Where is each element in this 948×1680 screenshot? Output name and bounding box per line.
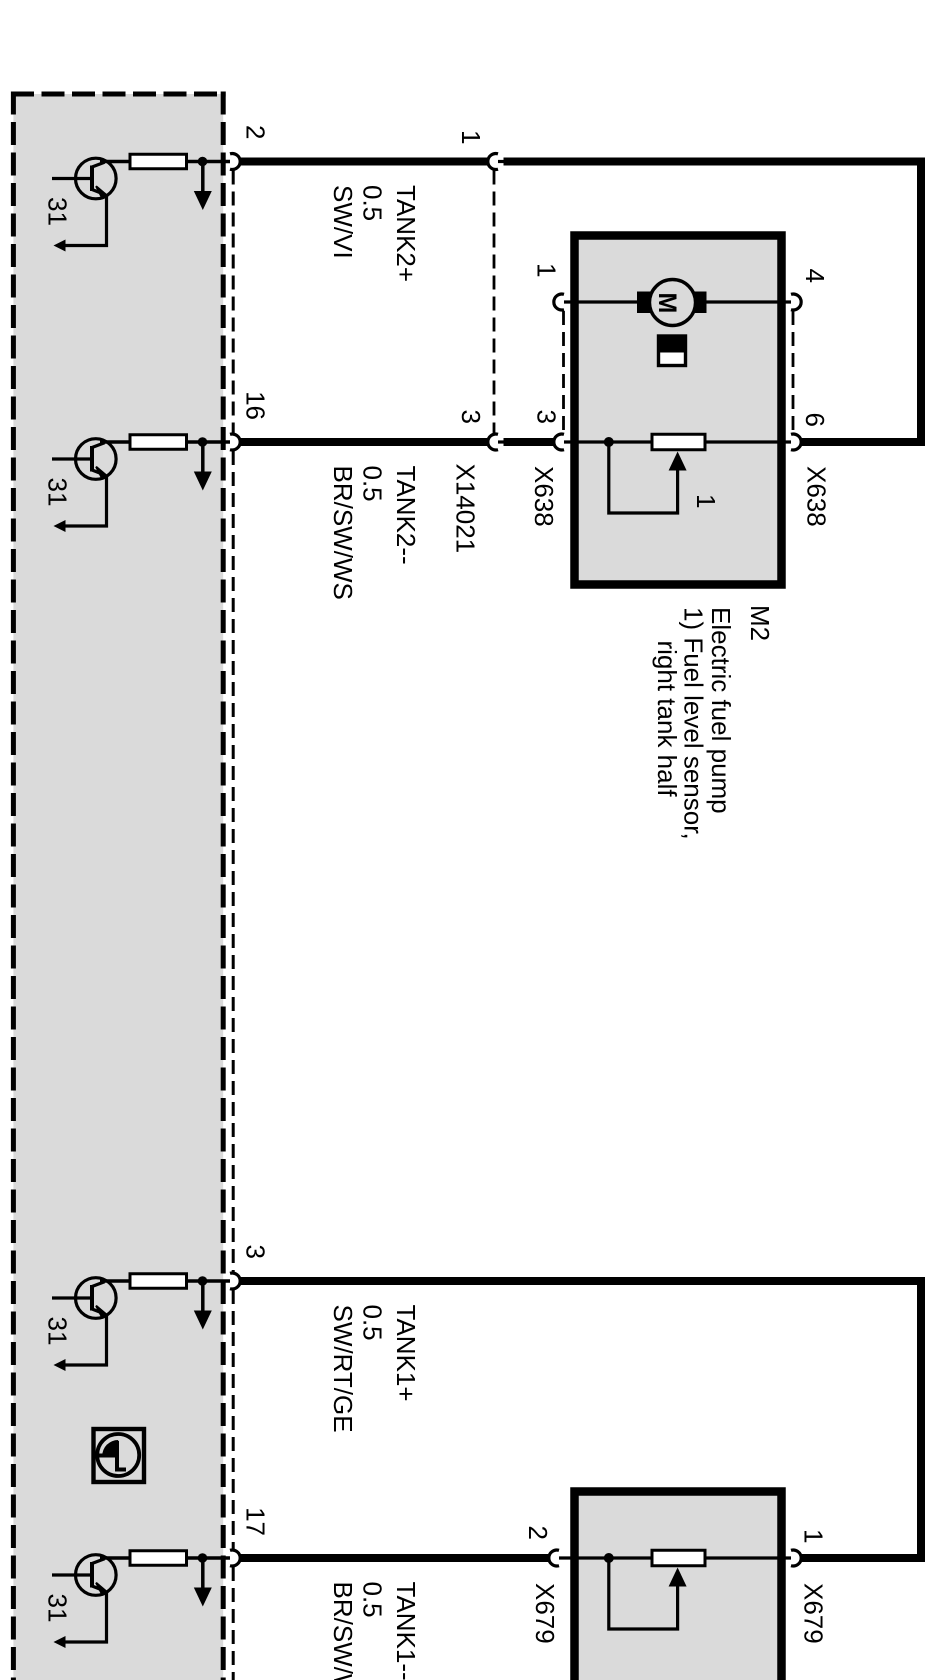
svg-text:X679: X679 bbox=[530, 1583, 560, 1644]
svg-text:1) Fuel level sensor,: 1) Fuel level sensor, bbox=[679, 607, 709, 840]
svg-text:X14021: X14021 bbox=[451, 464, 481, 554]
svg-text:X679: X679 bbox=[799, 1583, 829, 1644]
svg-text:TANK1--: TANK1-- bbox=[391, 1582, 421, 1680]
svg-text:SW/VI: SW/VI bbox=[328, 185, 358, 259]
svg-text:0.5: 0.5 bbox=[358, 1582, 388, 1618]
svg-text:31: 31 bbox=[43, 478, 73, 507]
svg-text:M: M bbox=[653, 293, 681, 314]
svg-text:0.5: 0.5 bbox=[358, 1305, 388, 1341]
svg-text:X638: X638 bbox=[802, 466, 832, 527]
svg-text:X638: X638 bbox=[529, 466, 559, 527]
svg-text:1: 1 bbox=[456, 130, 486, 144]
svg-text:0.5: 0.5 bbox=[358, 185, 388, 221]
svg-text:1: 1 bbox=[532, 263, 562, 277]
svg-text:1: 1 bbox=[799, 1529, 829, 1543]
svg-text:BR/SW/WS: BR/SW/WS bbox=[328, 466, 358, 600]
svg-text:6: 6 bbox=[800, 413, 830, 427]
svg-text:2: 2 bbox=[523, 1526, 553, 1540]
svg-text:31: 31 bbox=[43, 1317, 73, 1346]
svg-text:31: 31 bbox=[43, 1594, 73, 1623]
svg-text:TANK2+: TANK2+ bbox=[391, 185, 421, 282]
svg-text:SW/RT/GE: SW/RT/GE bbox=[328, 1305, 358, 1433]
svg-text:TANK1+: TANK1+ bbox=[391, 1305, 421, 1402]
svg-text:1: 1 bbox=[691, 494, 721, 508]
svg-text:3: 3 bbox=[241, 1245, 271, 1259]
svg-text:31: 31 bbox=[43, 197, 73, 226]
svg-text:M2: M2 bbox=[745, 605, 775, 641]
svg-text:TANK2--: TANK2-- bbox=[391, 466, 421, 565]
svg-text:2: 2 bbox=[241, 125, 271, 139]
svg-text:3: 3 bbox=[532, 410, 562, 424]
svg-text:16: 16 bbox=[241, 391, 271, 420]
svg-text:BR/SW/WS: BR/SW/WS bbox=[328, 1582, 358, 1680]
svg-text:Electric fuel pump: Electric fuel pump bbox=[706, 607, 736, 814]
svg-text:4: 4 bbox=[800, 269, 830, 283]
svg-text:17: 17 bbox=[241, 1507, 271, 1536]
svg-text:3: 3 bbox=[456, 410, 486, 424]
svg-text:right tank half: right tank half bbox=[652, 641, 682, 798]
svg-text:0.5: 0.5 bbox=[358, 466, 388, 502]
